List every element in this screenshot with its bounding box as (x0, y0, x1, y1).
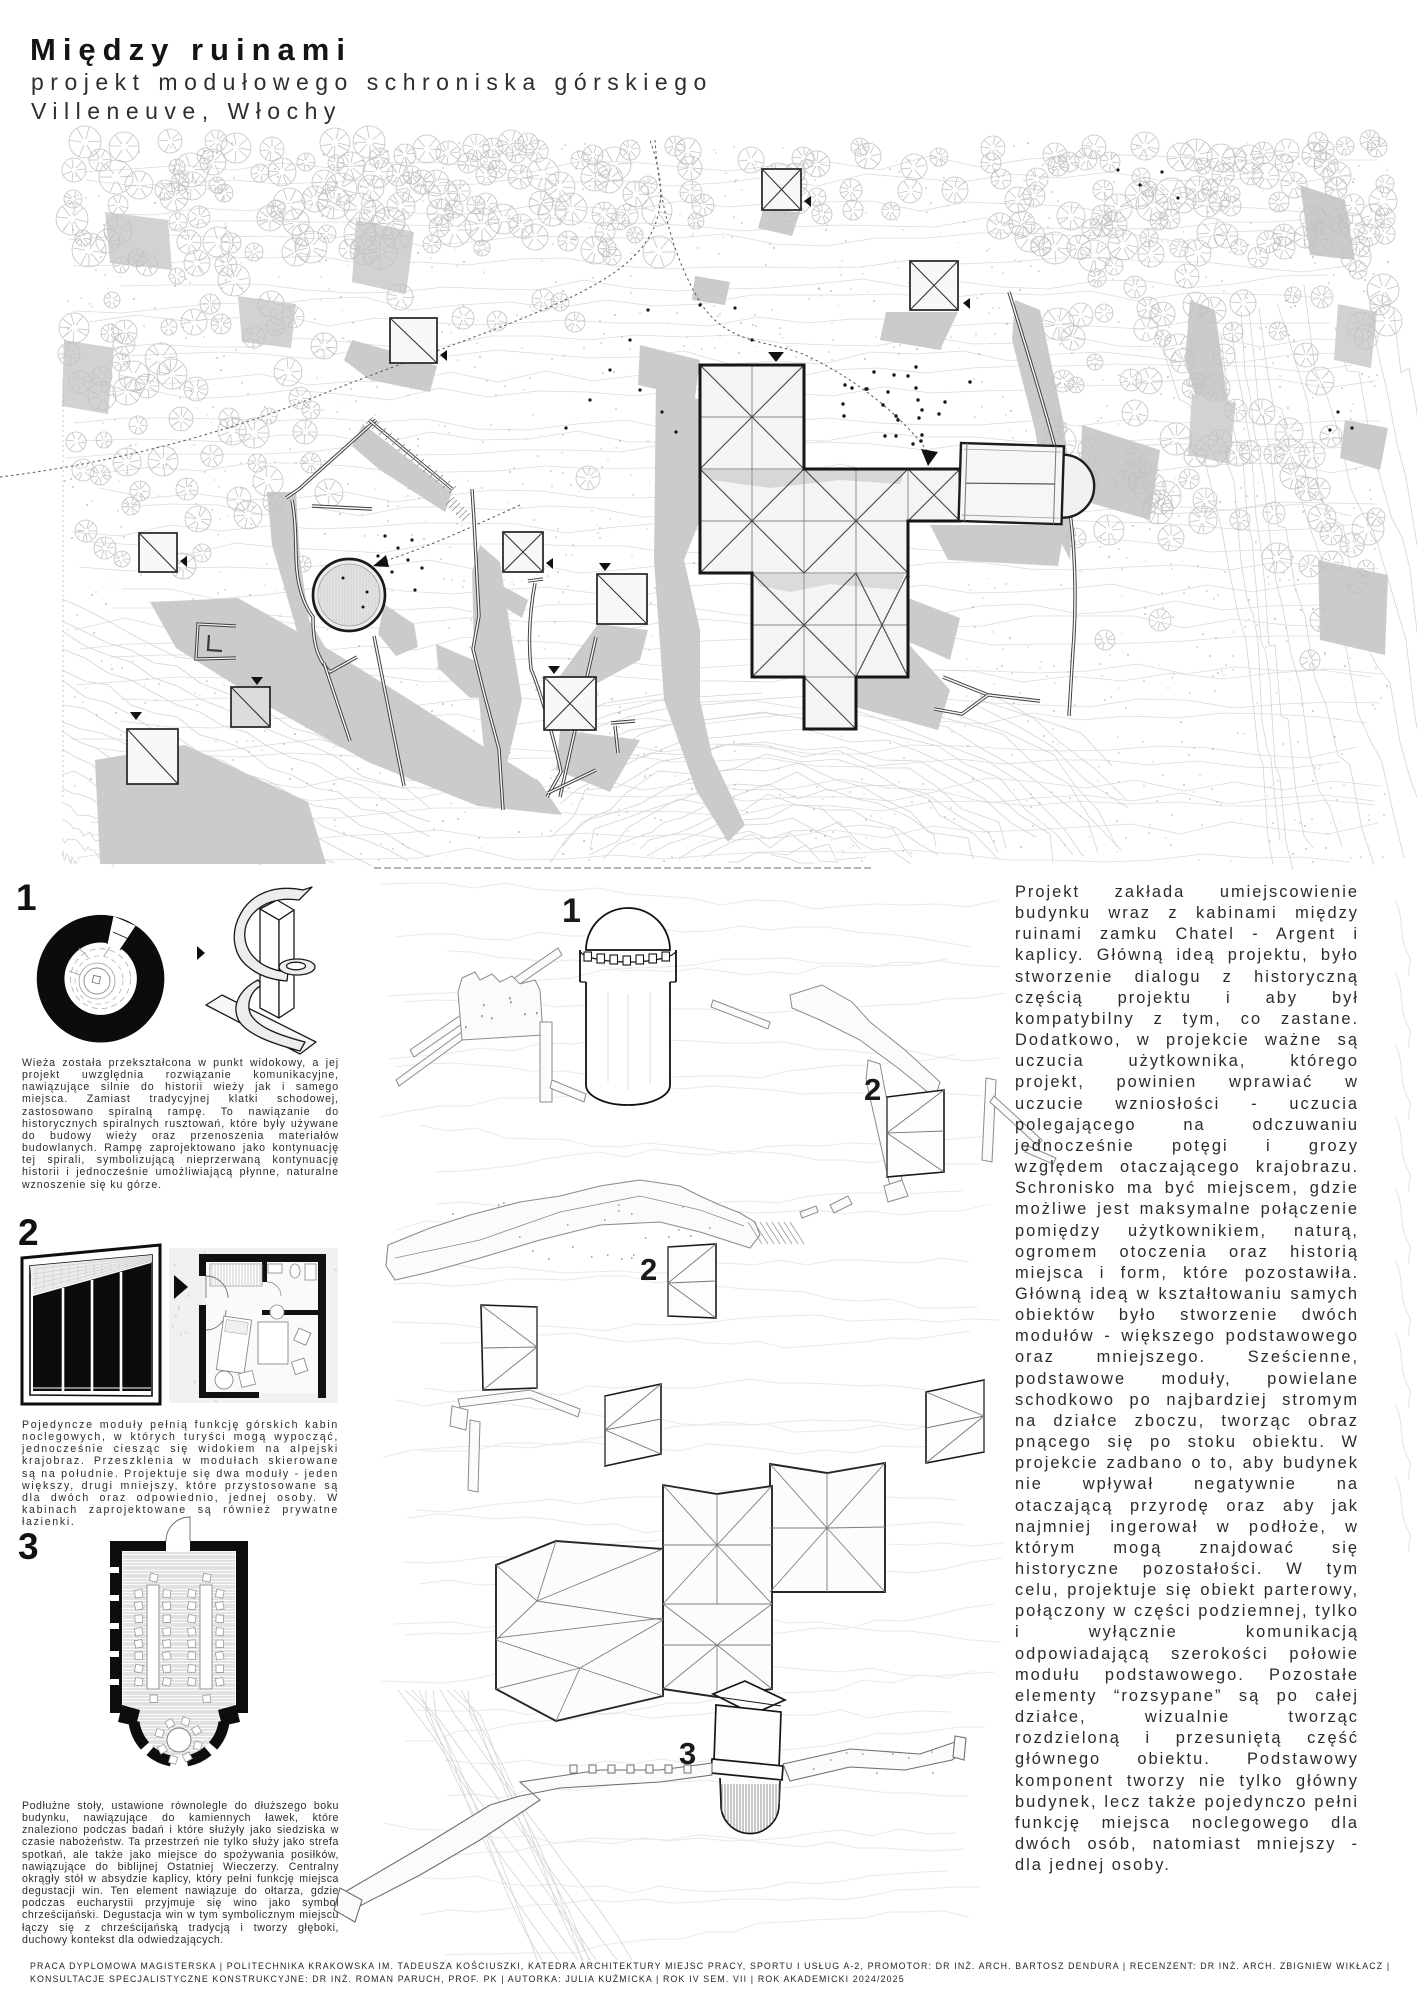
svg-text:1: 1 (562, 892, 581, 930)
svg-text:2: 2 (640, 1252, 657, 1287)
svg-text:2: 2 (864, 1072, 881, 1107)
svg-text:3: 3 (679, 1736, 696, 1771)
